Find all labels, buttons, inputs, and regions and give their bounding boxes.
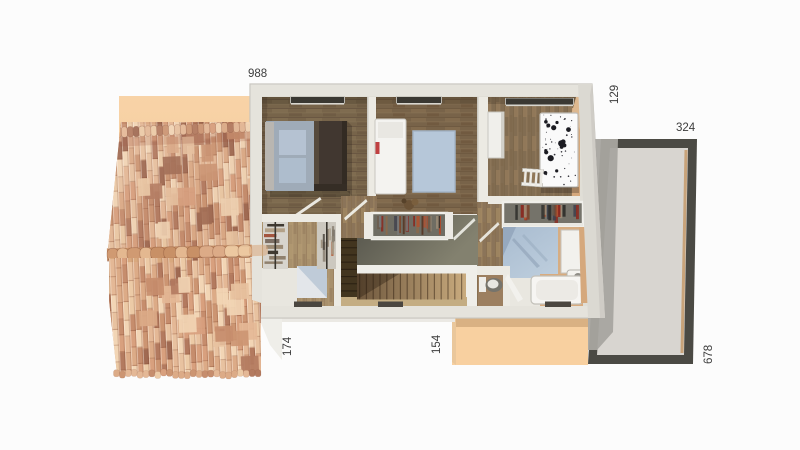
svg-text:174: 174 [282,336,294,356]
svg-text:678: 678 [703,345,715,364]
svg-text:154: 154 [431,334,443,354]
svg-text:129: 129 [609,85,621,104]
svg-text:988: 988 [248,68,267,80]
svg-text:324: 324 [676,122,696,134]
